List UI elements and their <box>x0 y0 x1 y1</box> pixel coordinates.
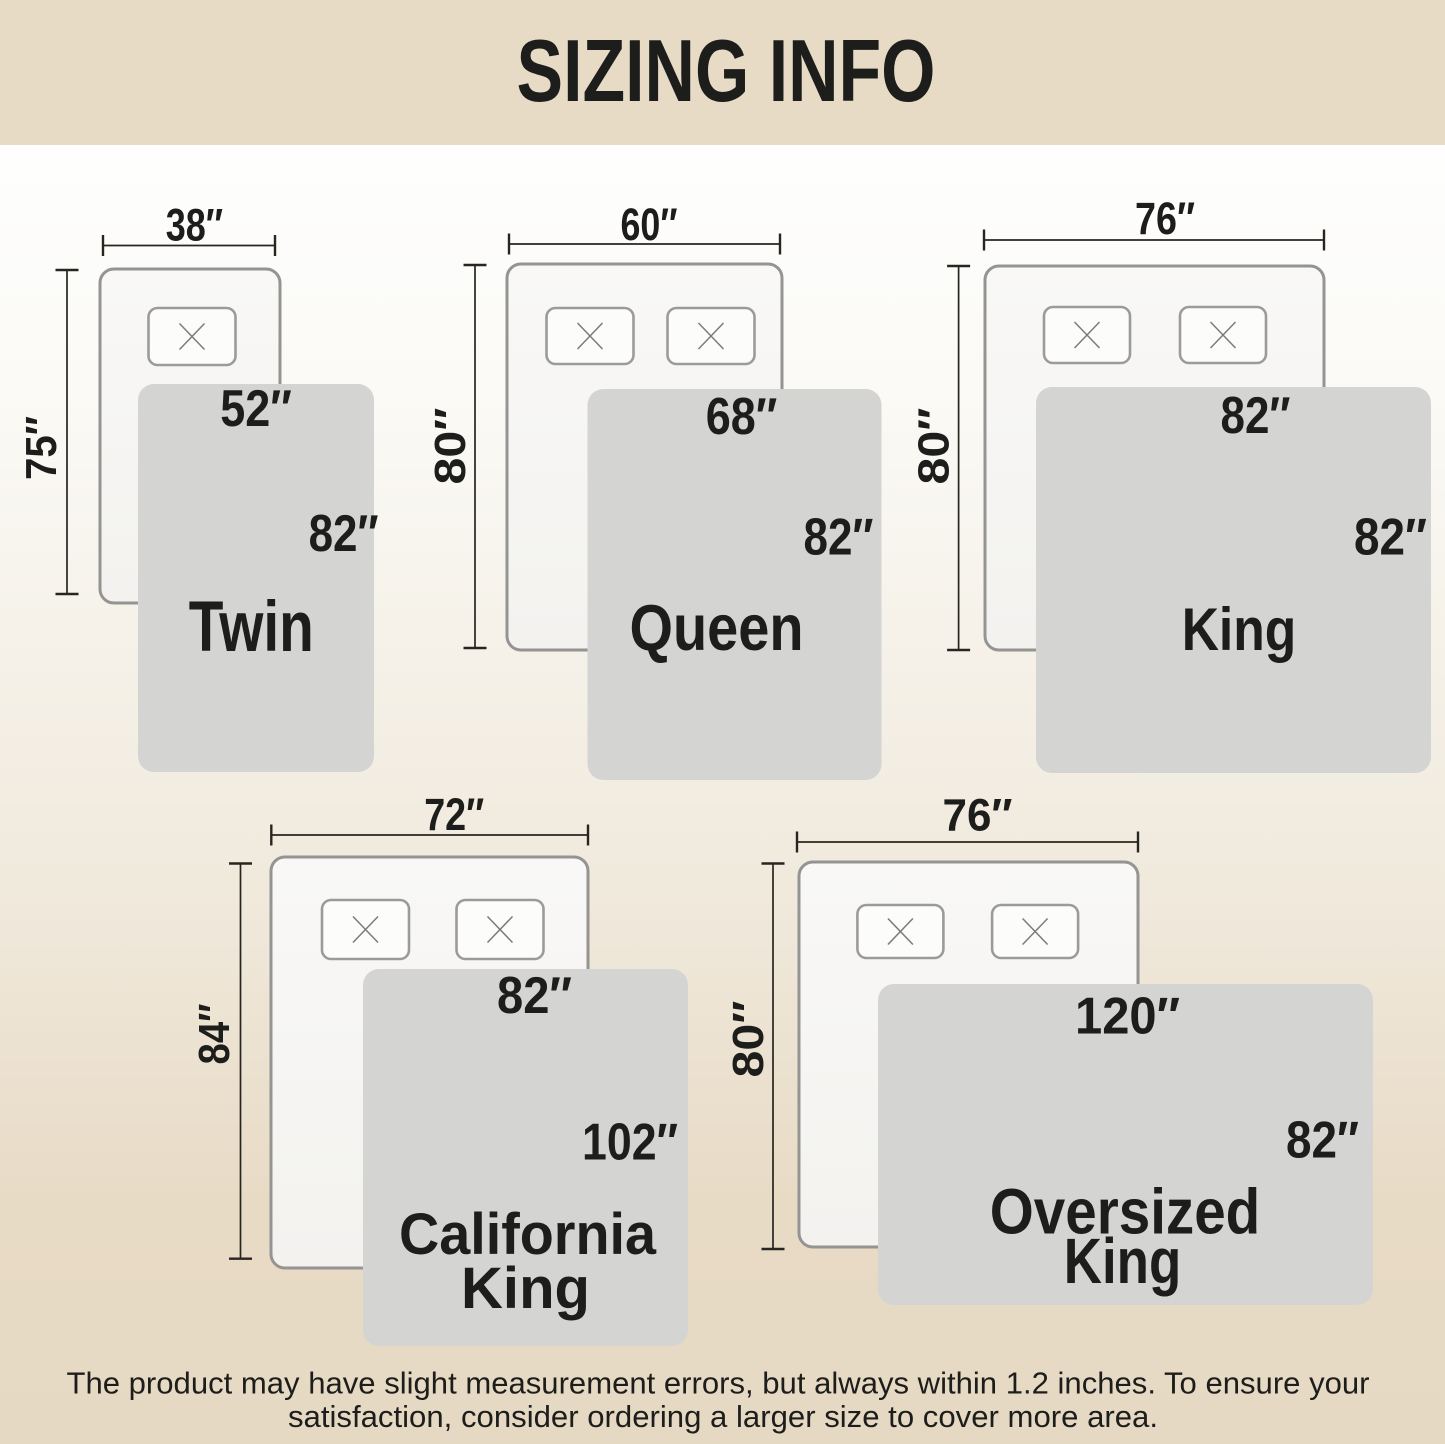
svg-text:75″: 75″ <box>17 416 66 480</box>
svg-text:82″: 82″ <box>804 509 874 567</box>
svg-text:102″: 102″ <box>582 1114 678 1172</box>
svg-text:84″: 84″ <box>190 1004 239 1065</box>
svg-text:80″: 80″ <box>426 408 475 485</box>
svg-text:80″: 80″ <box>910 408 959 485</box>
svg-text:60″: 60″ <box>621 199 678 250</box>
svg-text:76″: 76″ <box>943 790 1013 841</box>
svg-text:82″: 82″ <box>497 967 572 1025</box>
svg-text:38″: 38″ <box>166 200 223 251</box>
svg-text:Queen: Queen <box>630 591 804 664</box>
svg-text:SIZING INFO: SIZING INFO <box>517 21 936 120</box>
svg-text:68″: 68″ <box>706 388 778 446</box>
svg-text:82″: 82″ <box>1221 387 1291 445</box>
svg-text:80″: 80″ <box>724 1001 773 1078</box>
svg-text:The product may have slight me: The product may have slight measurement … <box>67 1366 1370 1401</box>
svg-text:King: King <box>1064 1225 1182 1297</box>
svg-text:82″: 82″ <box>1286 1112 1359 1170</box>
svg-text:120″: 120″ <box>1075 988 1180 1046</box>
svg-text:King: King <box>1182 596 1297 663</box>
svg-text:Twin: Twin <box>189 588 314 667</box>
svg-text:76″: 76″ <box>1135 193 1195 244</box>
svg-text:72″: 72″ <box>424 789 484 840</box>
svg-text:82″: 82″ <box>1354 509 1427 567</box>
svg-text:King: King <box>461 1256 590 1321</box>
svg-text:82″: 82″ <box>309 505 379 563</box>
svg-text:52″: 52″ <box>220 380 292 438</box>
svg-text:satisfaction, consider orderin: satisfaction, consider ordering a larger… <box>288 1399 1158 1434</box>
